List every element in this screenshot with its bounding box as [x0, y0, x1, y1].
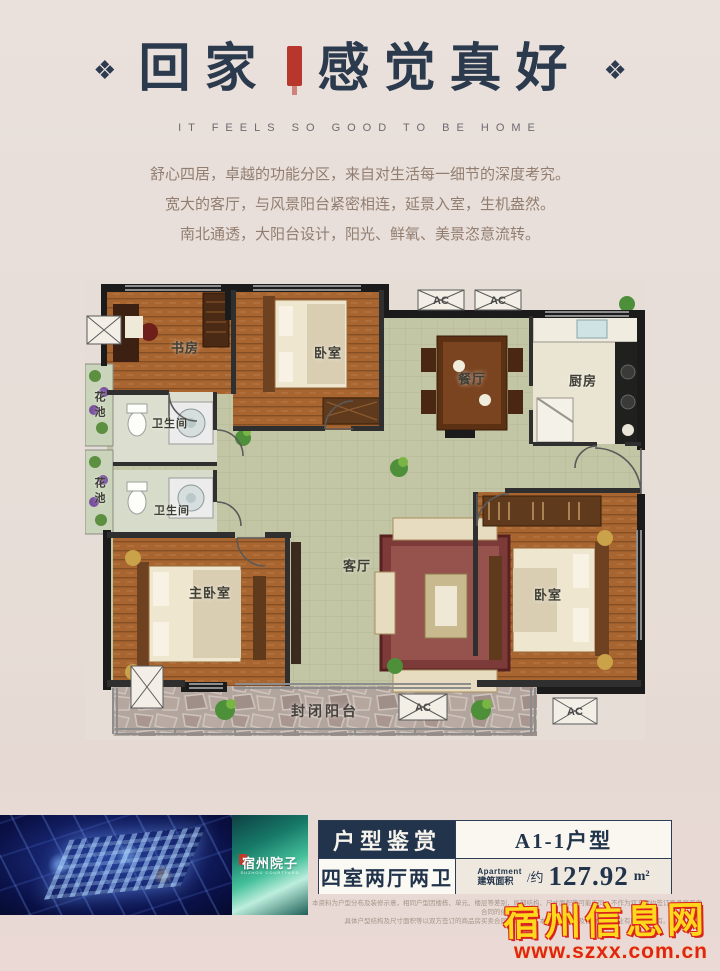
title-right: 感觉真好 — [318, 44, 582, 96]
room-label-kitchen: 厨房 — [569, 371, 597, 390]
room-label-bathroom-1: 卫生间 — [152, 415, 188, 431]
spec-unit-type: A1-1户型 — [456, 821, 671, 858]
area-value: 127.92 — [549, 861, 629, 892]
area-separator: /约 — [527, 867, 544, 886]
disclaimer: 本资料为户型分布及装修示意，相同户型因楼栋、单元、楼层等差别，局部结构、尺寸面积… — [312, 899, 702, 926]
knot-ornament-icon: ❖ — [93, 57, 116, 83]
knot-ornament-icon: ❖ — [604, 57, 627, 83]
floor-plan: AC AC AC AC 书房 卧室 餐厅 厨房 花池 卫生间 花池 卫生间 主卧… — [85, 280, 645, 740]
area-unit: m² — [634, 869, 650, 885]
watermark-site-url: www.szxx.com.cn — [503, 941, 708, 963]
poster-page: ❖ 回家 感觉真好 ❖ IT FEELS SO GOOD TO BE HOME … — [0, 0, 720, 971]
intro-paragraph: 舒心四居，卓越的功能分区，来自对生活每一细节的深度考究。 宽大的客厅，与风景阳台… — [0, 160, 720, 250]
title-left: 回家 — [138, 44, 270, 96]
disclaimer-line: 具体户型结构及尺寸面积等以双方签订的商品房买卖合同约定为准，本资料解释权及修改权… — [312, 917, 702, 926]
area-label-cn: 建筑面积 — [477, 877, 513, 886]
aerial-night-photo — [0, 815, 232, 915]
spec-rooms-desc: 四室两厅两卫 — [319, 859, 456, 894]
brand-caption: SUZHOU COURTYARD — [232, 870, 308, 875]
area-label-en: Apartment — [477, 868, 522, 876]
room-label-study: 书房 — [171, 338, 199, 357]
ac-label: AC — [490, 295, 506, 307]
intro-line: 舒心四居，卓越的功能分区，来自对生活每一细节的深度考究。 — [0, 160, 720, 190]
room-label-balcony: 封闭阳台 — [291, 701, 359, 721]
disclaimer-line: 本资料为户型分布及装修示意，相同户型因楼栋、单元、楼层等差别，局部结构、尺寸面积… — [312, 899, 702, 917]
room-label-flower-pond-2: 花池 — [91, 477, 107, 507]
room-label-flower-pond-1: 花池 — [91, 391, 107, 421]
page-title: ❖ 回家 感觉真好 ❖ — [0, 44, 720, 96]
ac-label: AC — [567, 706, 583, 718]
spec-area: Apartment 建筑面积 /约 127.92 m² — [456, 859, 671, 894]
room-label-bedroom-right: 卧室 — [534, 585, 562, 604]
room-label-living: 客厅 — [343, 556, 371, 575]
ac-label: AC — [415, 702, 431, 714]
unit-spec-table: 户型鉴赏 A1-1户型 四室两厅两卫 Apartment 建筑面积 /约 127… — [318, 820, 672, 894]
ac-label: AC — [433, 295, 449, 307]
intro-line: 宽大的客厅，与风景阳台紧密相连，延景入室，生机盎然。 — [0, 190, 720, 220]
red-seal-stamp-icon — [287, 46, 302, 86]
building-cluster — [44, 826, 206, 899]
area-label: Apartment 建筑面积 — [477, 868, 522, 886]
room-label-master-bedroom: 主卧室 — [189, 583, 231, 602]
spec-section-title: 户型鉴赏 — [319, 821, 456, 858]
room-label-dining: 餐厅 — [458, 369, 486, 388]
room-label-bedroom-top: 卧室 — [314, 343, 342, 362]
subtitle: IT FEELS SO GOOD TO BE HOME — [0, 122, 720, 134]
intro-line: 南北通透，大阳台设计，阳光、鲜氧、美景恣意流转。 — [0, 220, 720, 250]
brand-panel: 宿州院子 SUZHOU COURTYARD — [232, 815, 308, 915]
room-label-bathroom-2: 卫生间 — [154, 502, 190, 518]
